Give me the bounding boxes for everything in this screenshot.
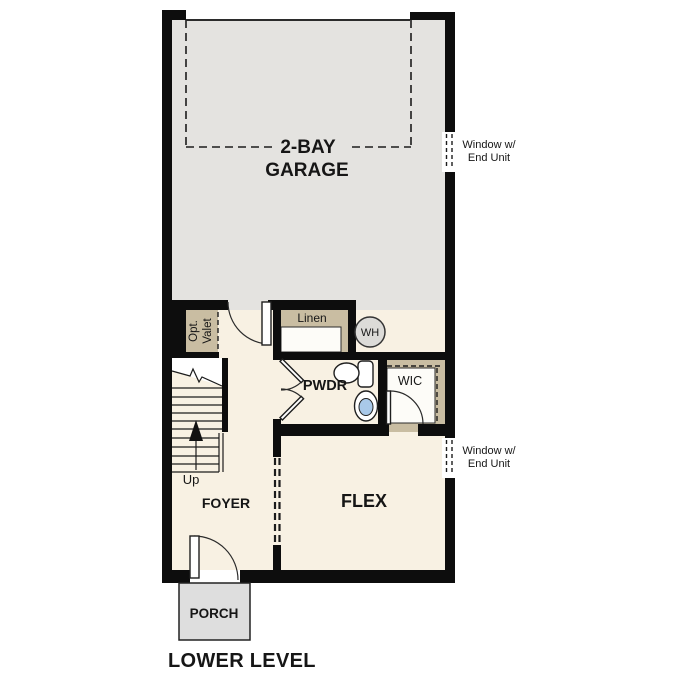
wall-garage-foyer-right xyxy=(268,300,356,310)
wall-bottom-right xyxy=(240,570,455,583)
wall-below-water-heater xyxy=(348,352,455,360)
valet-label-line1: Opt. xyxy=(188,320,200,342)
wall-stair-right xyxy=(222,358,228,432)
wic-label: WIC xyxy=(398,374,422,388)
wall-valet-block xyxy=(162,300,186,358)
wall-linen-bottom xyxy=(273,352,356,360)
pedestal-sink xyxy=(355,391,378,421)
floor-plan-svg: 2-BAY GARAGE Opt. Valet Linen WH PWDR WI… xyxy=(0,0,687,687)
window-lower xyxy=(442,438,457,478)
window-upper-label-line1: Window w/ xyxy=(462,139,516,151)
wic-door-leaf xyxy=(387,391,391,424)
wall-linen-right xyxy=(348,300,356,352)
wall-stair-head xyxy=(162,352,219,358)
wall-hall-pwdr-upper xyxy=(273,300,281,360)
wall-bottom-left xyxy=(162,570,190,583)
wall-top-left-cap xyxy=(162,10,186,20)
flex-label: FLEX xyxy=(341,491,387,511)
front-door-leaf xyxy=(190,536,199,578)
window-lower-label-line2: End Unit xyxy=(468,458,510,470)
garage-entry-door-leaf xyxy=(262,302,271,345)
window-upper xyxy=(442,132,457,172)
linen-inset xyxy=(281,327,341,352)
wall-pwdr-right xyxy=(378,352,387,425)
sink-basin xyxy=(359,399,373,416)
floor-plan-page: 2-BAY GARAGE Opt. Valet Linen WH PWDR WI… xyxy=(0,0,687,687)
linen-label: Linen xyxy=(297,311,326,325)
page-title: LOWER LEVEL xyxy=(168,650,316,672)
window-upper-box xyxy=(442,132,457,172)
window-upper-label-line2: End Unit xyxy=(468,152,510,164)
window-lower-box xyxy=(442,438,457,478)
pwdr-label: PWDR xyxy=(303,378,348,394)
wall-pwdr-bottom xyxy=(273,424,389,436)
foyer-label: FOYER xyxy=(202,495,250,511)
porch-label: PORCH xyxy=(190,606,239,621)
garage-label-line2: GARAGE xyxy=(265,160,348,181)
wall-flex-left-upper xyxy=(273,437,281,457)
wall-wic-bottom xyxy=(418,424,455,436)
garage-label-line1: 2-BAY xyxy=(280,137,336,158)
valet-label-line2: Valet xyxy=(202,318,214,344)
wall-left xyxy=(162,10,172,583)
window-lower-label-line1: Window w/ xyxy=(462,445,516,457)
wall-right xyxy=(445,12,455,583)
water-heater-label: WH xyxy=(361,327,379,339)
toilet-tank xyxy=(358,361,373,387)
wall-flex-left-lower xyxy=(273,545,281,572)
stairs-up-label: Up xyxy=(183,472,200,487)
